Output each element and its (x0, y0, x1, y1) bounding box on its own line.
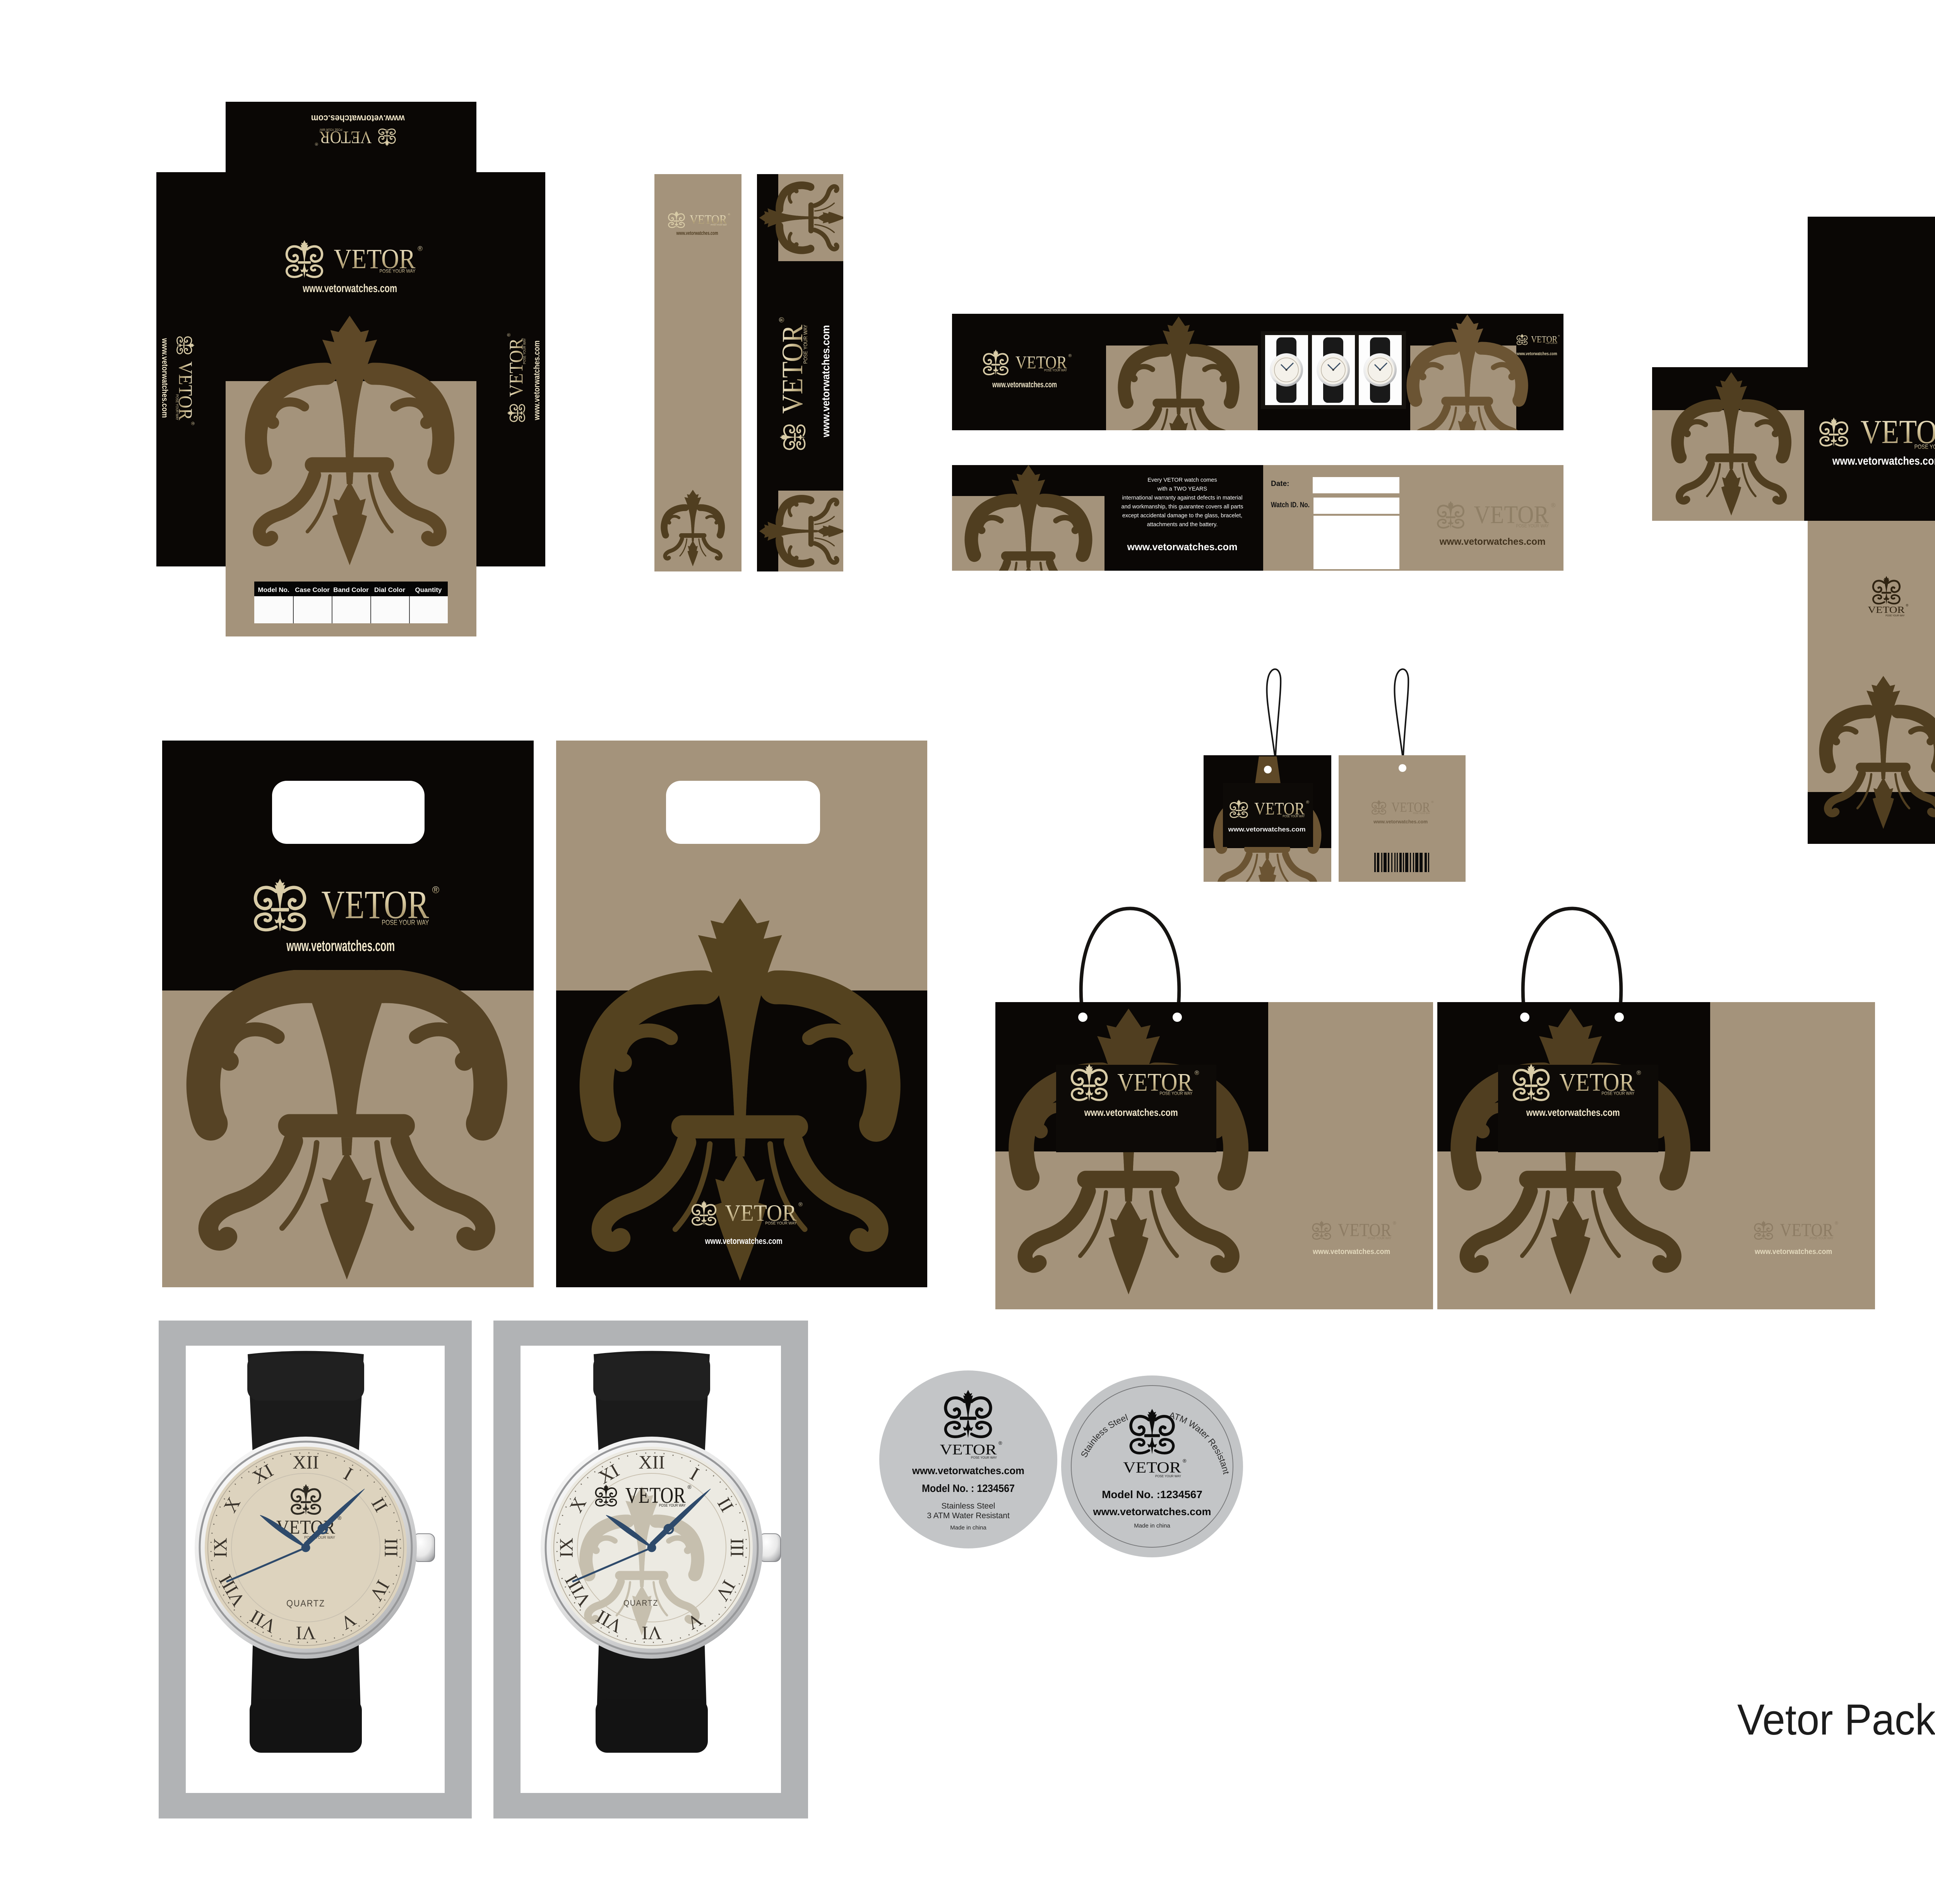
svg-text:®: ® (432, 885, 440, 896)
svg-text:www.vetorwatches.com: www.vetorwatches.com (820, 325, 832, 438)
svg-text:POSE YOUR WAY: POSE YOUR WAY (803, 325, 808, 364)
svg-text:3 ATM Water Resistant: 3 ATM Water Resistant (927, 1511, 1010, 1520)
svg-text:www.vetorwatches.com: www.vetorwatches.com (1526, 1107, 1620, 1118)
svg-text:attachments and the battery.: attachments and the battery. (1147, 522, 1218, 528)
svg-text:www.vetorwatches.com: www.vetorwatches.com (1439, 536, 1546, 547)
svg-text:Watch ID. No.: Watch ID. No. (1271, 501, 1310, 509)
svg-text:XII: XII (293, 1452, 319, 1473)
svg-text:POSE YOUR WAY: POSE YOUR WAY (711, 224, 727, 227)
svg-text:with a TWO YEARS: with a TWO YEARS (1157, 486, 1207, 492)
svg-text:VETOR: VETOR (1868, 605, 1904, 615)
svg-text:www.vetorwatches.com: www.vetorwatches.com (1832, 455, 1935, 467)
svg-text:®: ® (190, 422, 195, 425)
svg-text:®: ® (418, 245, 423, 252)
svg-text:Quantity: Quantity (415, 586, 442, 594)
svg-text:III: III (727, 1538, 748, 1557)
svg-text:POSE YOUR WAY: POSE YOUR WAY (175, 394, 179, 420)
svg-text:international warranty against: international warranty against defects i… (1122, 495, 1242, 501)
svg-text:XII: XII (639, 1452, 665, 1473)
svg-text:®: ® (1431, 800, 1434, 804)
svg-text:except accidental damage to th: except accidental damage to the glass, b… (1122, 513, 1242, 519)
svg-text:®: ® (1906, 604, 1909, 607)
svg-text:POSE YOUR WAY: POSE YOUR WAY (380, 268, 416, 274)
svg-text:www.vetorwatches.com: www.vetorwatches.com (533, 340, 541, 421)
svg-text:www.vetorwatches.com: www.vetorwatches.com (302, 282, 397, 295)
svg-text:®: ® (1835, 1221, 1838, 1226)
svg-text:www.vetorwatches.com: www.vetorwatches.com (1312, 1248, 1390, 1256)
svg-text:POSE YOUR WAY: POSE YOUR WAY (1159, 1091, 1192, 1096)
svg-text:POSE YOUR WAY: POSE YOUR WAY (1044, 368, 1067, 372)
svg-text:www.vetorwatches.com: www.vetorwatches.com (1084, 1107, 1178, 1118)
svg-text:®: ® (1183, 1458, 1187, 1464)
svg-text:®: ® (1637, 1070, 1641, 1076)
svg-text:®: ® (506, 333, 512, 337)
svg-text:QUARTZ: QUARTZ (623, 1599, 658, 1608)
svg-text:www.vetorwatches.com: www.vetorwatches.com (912, 1465, 1024, 1476)
svg-text:®: ® (687, 1484, 692, 1490)
svg-text:www.vetorwatches.com: www.vetorwatches.com (992, 380, 1057, 389)
svg-text:VETOR: VETOR (940, 1442, 997, 1458)
svg-text:POSE YOUR WAY: POSE YOUR WAY (1914, 444, 1935, 450)
svg-text:POSE YOUR WAY: POSE YOUR WAY (523, 338, 527, 364)
svg-text:www.vetorwatches.com: www.vetorwatches.com (1754, 1248, 1832, 1256)
svg-text:www.vetorwatches.com: www.vetorwatches.com (1228, 826, 1306, 833)
svg-text:POSE YOUR WAY: POSE YOUR WAY (1810, 1236, 1833, 1240)
svg-text:POSE YOUR WAY: POSE YOUR WAY (382, 919, 429, 927)
svg-text:POSE YOUR WAY: POSE YOUR WAY (1155, 1475, 1182, 1478)
svg-text:www.vetorwatches.com: www.vetorwatches.com (160, 338, 169, 418)
svg-text:®: ® (1069, 354, 1072, 358)
svg-text:Case Color: Case Color (295, 586, 330, 594)
svg-text:®: ® (728, 213, 730, 217)
svg-text:®: ® (315, 142, 318, 146)
svg-text:POSE YOUR WAY: POSE YOUR WAY (1601, 1091, 1634, 1096)
svg-text:POSE YOUR WAY: POSE YOUR WAY (1516, 523, 1549, 529)
svg-text:®: ® (1306, 800, 1309, 805)
svg-text:QUARTZ: QUARTZ (286, 1598, 325, 1609)
svg-text:®: ® (1393, 1221, 1396, 1226)
svg-text:www.vetorwatches.com: www.vetorwatches.com (1127, 541, 1238, 553)
svg-text:®: ® (798, 1202, 803, 1208)
svg-text:and workmanship, this guarante: and workmanship, this guarantee covers a… (1121, 504, 1243, 510)
svg-text:Band Color: Band Color (333, 586, 369, 594)
svg-text:Model No. :1234567: Model No. :1234567 (1102, 1488, 1202, 1500)
svg-text:Made in china: Made in china (1134, 1523, 1170, 1529)
svg-text:Model No.: Model No. (258, 586, 289, 594)
svg-text:VETOR: VETOR (1123, 1459, 1181, 1476)
svg-text:www.vetorwatches.com: www.vetorwatches.com (1516, 351, 1557, 356)
svg-text:®: ® (998, 1440, 1002, 1446)
svg-text:www.vetorwatches.com: www.vetorwatches.com (1093, 1506, 1211, 1517)
svg-text:Model No. : 1234567: Model No. : 1234567 (922, 1482, 1015, 1494)
svg-text:®: ® (1195, 1070, 1199, 1076)
svg-text:III: III (381, 1538, 402, 1557)
svg-text:Stainless Steel: Stainless Steel (942, 1502, 995, 1511)
svg-text:www.vetorwatches.com: www.vetorwatches.com (286, 937, 395, 955)
svg-text:POSE YOUR WAY: POSE YOUR WAY (1283, 815, 1305, 818)
svg-text:www.vetorwatches.com: www.vetorwatches.com (311, 113, 405, 123)
svg-text:POSE YOUR WAY: POSE YOUR WAY (659, 1504, 686, 1508)
svg-text:www.vetorwatches.com: www.vetorwatches.com (1373, 819, 1428, 825)
svg-text:POSE YOUR WAY: POSE YOUR WAY (765, 1221, 796, 1226)
svg-text:POSE YOUR WAY: POSE YOUR WAY (1413, 812, 1430, 815)
svg-text:VI: VI (642, 1623, 662, 1644)
svg-text:VI: VI (296, 1623, 316, 1644)
svg-text:POSE YOUR WAY: POSE YOUR WAY (971, 1456, 997, 1459)
svg-text:IX: IX (210, 1538, 231, 1558)
svg-text:IX: IX (556, 1538, 577, 1558)
svg-text:Date:: Date: (1271, 480, 1289, 488)
svg-text:POSE YOUR WAY: POSE YOUR WAY (319, 128, 342, 132)
svg-text:POSE YOUR WAY: POSE YOUR WAY (1546, 342, 1557, 344)
svg-text:Made in china: Made in china (950, 1524, 986, 1531)
svg-text:POSE YOUR WAY: POSE YOUR WAY (1885, 615, 1905, 617)
svg-text:®: ® (1558, 335, 1560, 337)
svg-text:®: ® (1551, 502, 1556, 509)
svg-text:www.vetorwatches.com: www.vetorwatches.com (676, 230, 718, 236)
svg-text:Vetor Packaging: Vetor Packaging (1737, 1695, 1935, 1744)
svg-text:Every VETOR watch comes: Every VETOR watch comes (1147, 477, 1217, 483)
svg-text:POSE YOUR WAY: POSE YOUR WAY (1368, 1236, 1391, 1240)
svg-text:®: ® (778, 317, 786, 322)
svg-text:Dial Color: Dial Color (374, 586, 406, 594)
svg-text:www.vetorwatches.com: www.vetorwatches.com (705, 1236, 783, 1246)
